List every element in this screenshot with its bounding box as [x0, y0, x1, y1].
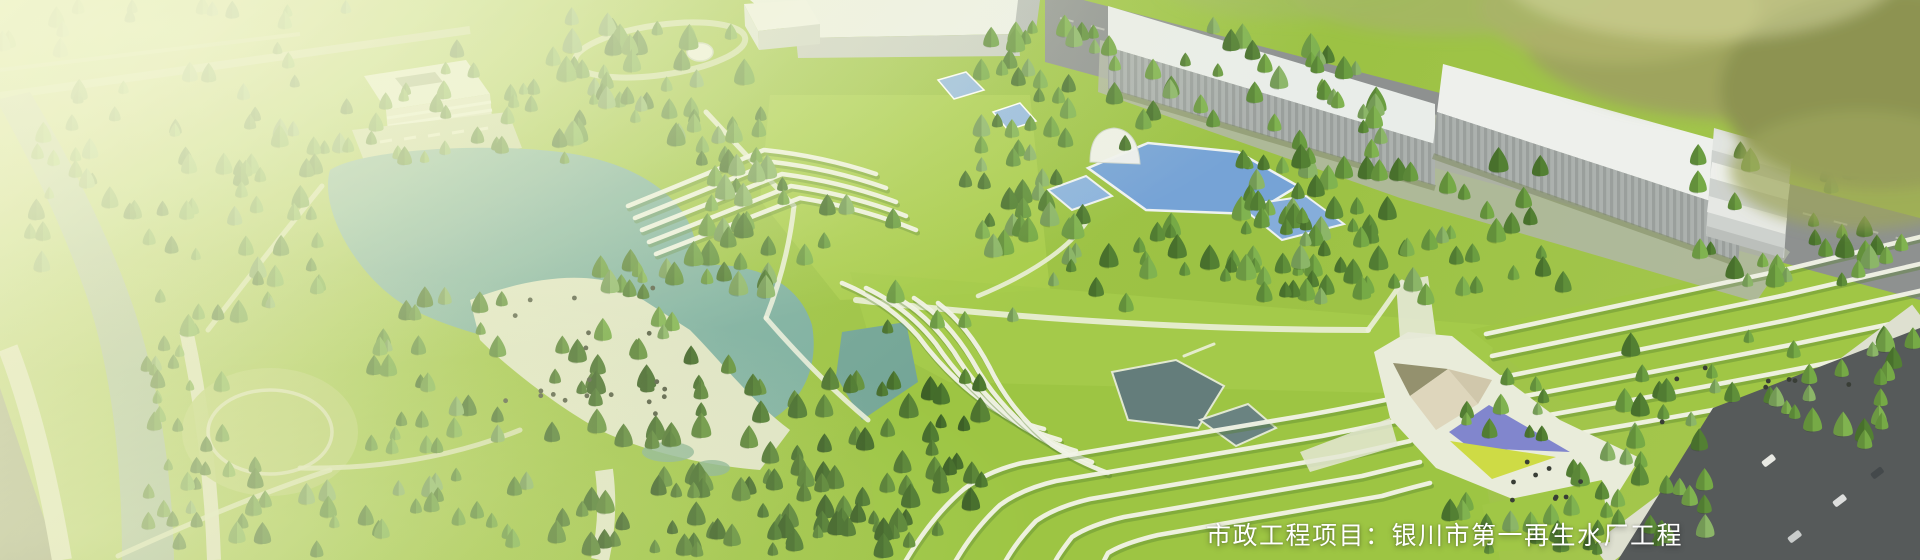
project-caption: 市政工程项目：银川市第一再生水厂工程: [1206, 516, 1683, 552]
haze-overlay: [0, 0, 1920, 560]
aerial-rendering: [0, 0, 1920, 560]
hero-banner: 市政工程项目：银川市第一再生水厂工程: [0, 0, 1920, 560]
